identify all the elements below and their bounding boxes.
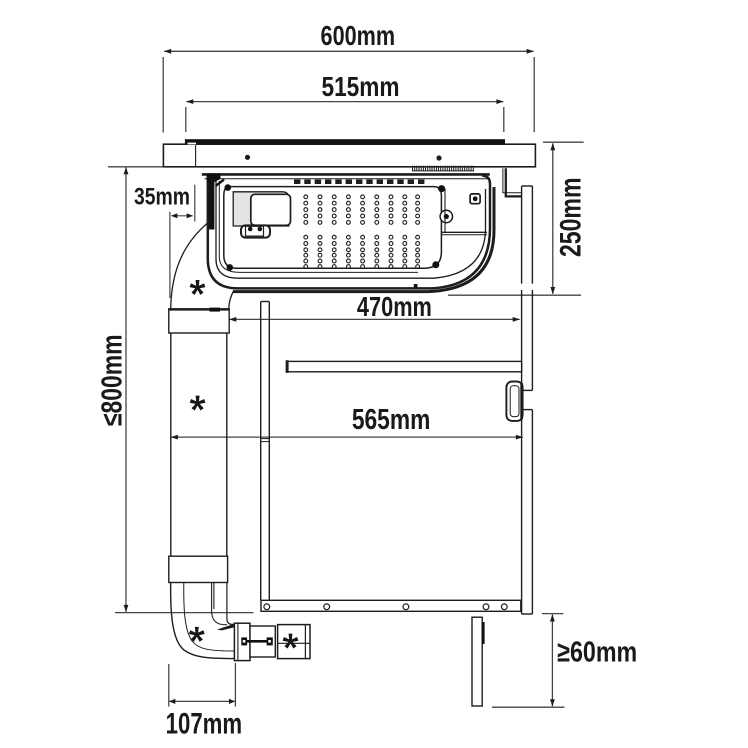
- svg-text:35mm: 35mm: [134, 184, 190, 211]
- svg-text:107mm: 107mm: [166, 708, 243, 741]
- svg-text:565mm: 565mm: [352, 404, 431, 436]
- svg-text:≥60mm: ≥60mm: [557, 637, 637, 669]
- svg-text:515mm: 515mm: [322, 71, 400, 102]
- svg-text:600mm: 600mm: [321, 20, 396, 51]
- svg-text:250mm: 250mm: [554, 178, 587, 257]
- svg-text:470mm: 470mm: [357, 291, 432, 322]
- svg-text:≤800mm: ≤800mm: [96, 335, 128, 427]
